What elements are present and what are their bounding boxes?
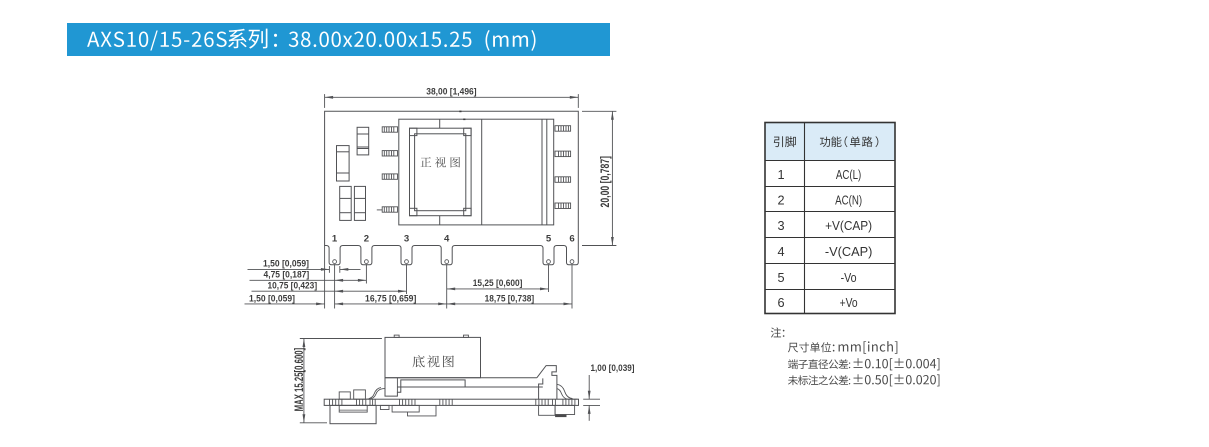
svg-text:+Vo: +Vo bbox=[840, 296, 858, 310]
svg-text:+V(CAP): +V(CAP) bbox=[825, 219, 872, 233]
svg-text:10,75 [0,423]: 10,75 [0,423] bbox=[268, 281, 318, 291]
svg-text:1,00 [0,039]: 1,00 [0,039] bbox=[591, 363, 635, 373]
svg-text:15,25 [0,600]: 15,25 [0,600] bbox=[473, 278, 523, 288]
svg-text:1,50 [0,059]: 1,50 [0,059] bbox=[263, 259, 309, 269]
svg-text:5: 5 bbox=[777, 271, 784, 285]
svg-text:AC(N): AC(N) bbox=[835, 194, 862, 208]
svg-text:-V(CAP): -V(CAP) bbox=[825, 245, 873, 259]
svg-text:-Vo: -Vo bbox=[841, 271, 857, 285]
svg-text:6: 6 bbox=[777, 296, 784, 310]
svg-text:20,00 [0,787]: 20,00 [0,787] bbox=[598, 156, 612, 208]
svg-text:4,75 [0,187]: 4,75 [0,187] bbox=[264, 270, 310, 280]
svg-text:5: 5 bbox=[546, 233, 552, 244]
svg-text:6: 6 bbox=[569, 233, 574, 244]
svg-text:4: 4 bbox=[444, 233, 450, 244]
svg-text:1,50 [0,059]: 1,50 [0,059] bbox=[249, 293, 295, 303]
svg-text:16,75 [0,659]: 16,75 [0,659] bbox=[365, 293, 416, 303]
svg-text:4: 4 bbox=[777, 245, 784, 259]
svg-text:MAX 15.25[0.600]: MAX 15.25[0.600] bbox=[293, 348, 306, 412]
svg-text:18,75 [0,738]: 18,75 [0,738] bbox=[485, 293, 535, 303]
svg-text:2: 2 bbox=[777, 194, 784, 208]
svg-text:1: 1 bbox=[332, 233, 338, 244]
svg-text:3: 3 bbox=[404, 233, 409, 244]
svg-text:AC(L): AC(L) bbox=[836, 168, 861, 182]
svg-text:2: 2 bbox=[364, 233, 369, 244]
svg-text:3: 3 bbox=[777, 219, 784, 233]
svg-text:1: 1 bbox=[777, 168, 784, 182]
svg-text:38,00 [1,496]: 38,00 [1,496] bbox=[426, 87, 476, 97]
